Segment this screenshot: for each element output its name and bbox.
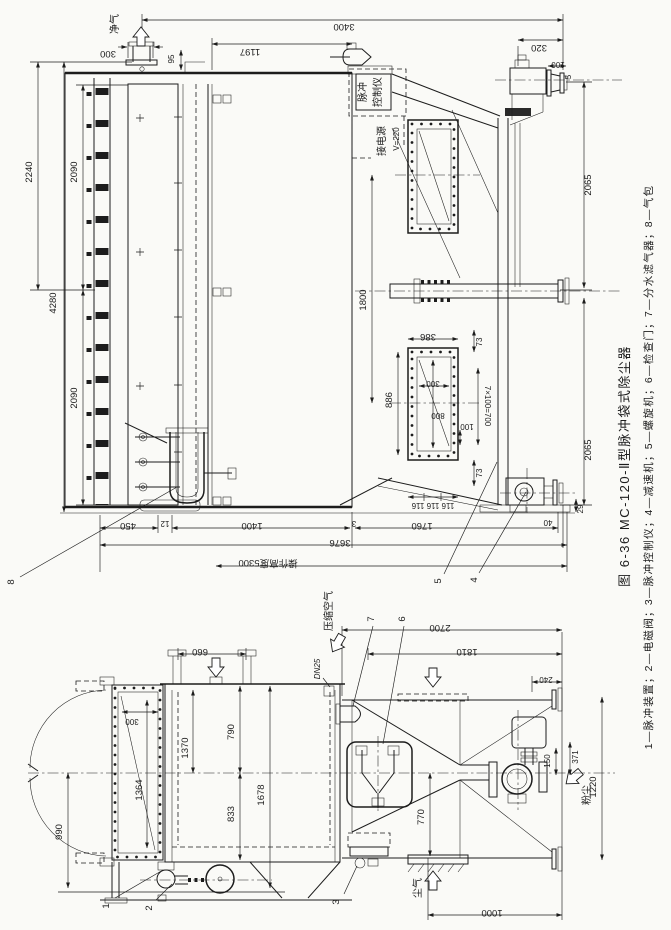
gas-flow-arrow-roof: [208, 658, 224, 677]
part-1: 1: [101, 903, 112, 908]
part-7: 7: [366, 616, 377, 621]
dim-73-b: 73: [475, 468, 484, 477]
water-separator: [336, 704, 361, 724]
dim-660: 660: [192, 646, 208, 657]
hopper-flow-arrow: [425, 668, 441, 687]
dim-833: 833: [226, 806, 237, 822]
inspection-window-1: [408, 120, 458, 233]
caption-title: 图 6-36 MC-120-Ⅱ型脉冲袋式除尘器: [617, 345, 632, 587]
side-view-annotations: 压缩空气 DN25 粉尘 尘气: [313, 591, 593, 898]
dim-1364: 1364: [134, 779, 145, 800]
dim-240: 240: [539, 675, 553, 684]
dim-371: 371: [571, 750, 580, 764]
clean-gas-flow-arrow: [133, 27, 149, 46]
label-dn25: DN25: [313, 658, 322, 679]
dim-3: 3: [351, 519, 356, 528]
dim-770: 770: [416, 809, 427, 825]
dim-386: 386: [420, 331, 436, 342]
roof-stubs: [168, 650, 256, 684]
scanned-drawing-page: 3400 1197 300 95 320 100 5 2240 4280 209…: [0, 0, 671, 930]
technical-drawing: 3400 1197 300 95 320 100 5 2240 4280 209…: [0, 0, 671, 930]
dim-300-stub: 300: [100, 48, 116, 59]
dim-886: 886: [384, 392, 395, 408]
dim-2700: 2700: [429, 622, 450, 633]
dim-1760: 1760: [411, 520, 432, 531]
side-view-structure: [28, 650, 586, 903]
pulse-blow-tube: [330, 43, 371, 65]
dim-116: 116 116 116: [411, 501, 454, 510]
dim-7x100: 7×100=700: [483, 386, 492, 427]
side-controller: [348, 833, 390, 868]
bracket-marks: [213, 95, 231, 505]
dim-2090-upper: 2090: [69, 161, 80, 182]
label-power-line2: V=220: [392, 127, 401, 151]
dim-100-flange: 100: [551, 60, 565, 69]
dim-1800: 1800: [358, 289, 369, 310]
dim-1810: 1810: [456, 646, 477, 657]
dim-2065-upper: 2065: [583, 174, 594, 195]
label-dust: 粉尘: [580, 785, 593, 805]
dim-40: 40: [543, 518, 552, 527]
part-4: 4: [469, 577, 480, 582]
dim-100-win: 100: [460, 422, 474, 431]
part-3: 3: [331, 899, 342, 904]
dim-73-a: 73: [475, 337, 484, 346]
label-controller-line1: 脉冲: [356, 82, 369, 102]
dim-790: 790: [226, 724, 237, 740]
dim-1370: 1370: [180, 737, 191, 758]
dim-1197: 1197: [240, 46, 260, 57]
dim-95: 95: [167, 54, 176, 63]
dim-320: 320: [531, 42, 547, 53]
part-2: 2: [144, 905, 155, 910]
dim-300-door: 300: [125, 717, 139, 726]
dim-1000: 1000: [481, 907, 502, 918]
dim-2240: 2240: [24, 161, 35, 182]
front-view-annotations: 净气 脉冲 控制仪 接电源 V=220: [108, 14, 401, 156]
dim-5: 5: [564, 74, 573, 79]
screw-drive: [506, 478, 563, 512]
dim-2065-lower: 2065: [583, 439, 594, 460]
label-dusty-gas: 尘气: [411, 878, 424, 898]
label-compressed-air: 压缩空气: [322, 591, 335, 631]
dim-1400: 1400: [241, 520, 262, 531]
part-5: 5: [433, 578, 444, 583]
figure-caption: 图 6-36 MC-120-Ⅱ型脉冲袋式除尘器 1—脉冲装置；2—电磁阀；3—脉…: [617, 185, 655, 750]
dim-2090-lower: 2090: [69, 387, 80, 408]
part-8: 8: [6, 579, 17, 584]
label-clean-gas: 净气: [108, 14, 121, 34]
pulse-valve-assembly: [100, 862, 352, 903]
blow-pipe-assembly: [347, 742, 412, 808]
dusty-gas-arrow: [425, 871, 441, 890]
dim-1678: 1678: [256, 784, 267, 805]
dim-12: 12: [160, 519, 169, 528]
compressed-air-arrow: [326, 631, 349, 655]
dim-450: 450: [120, 520, 136, 531]
front-view-structure: [60, 42, 575, 513]
dim-29: 29: [576, 504, 585, 513]
caption-legend: 1—脉冲装置；2—电磁阀；3—脉冲控制仪；4—减速机；5—螺旋机；6—检查门；7…: [642, 185, 655, 750]
label-power-line1: 接电源: [375, 126, 388, 156]
part-6: 6: [397, 616, 408, 621]
dim-990: 990: [54, 824, 65, 840]
label-controller-line2: 控制仪: [371, 77, 384, 107]
dim-4280: 4280: [48, 292, 59, 313]
dim-3676: 3676: [329, 537, 350, 548]
dim-800: 800: [431, 411, 445, 420]
dim-3400: 3400: [333, 21, 354, 32]
dim-operating-height: 操作高度5300: [238, 557, 297, 569]
gas-bag-assembly: [125, 423, 236, 511]
dim-150: 150: [543, 754, 552, 768]
